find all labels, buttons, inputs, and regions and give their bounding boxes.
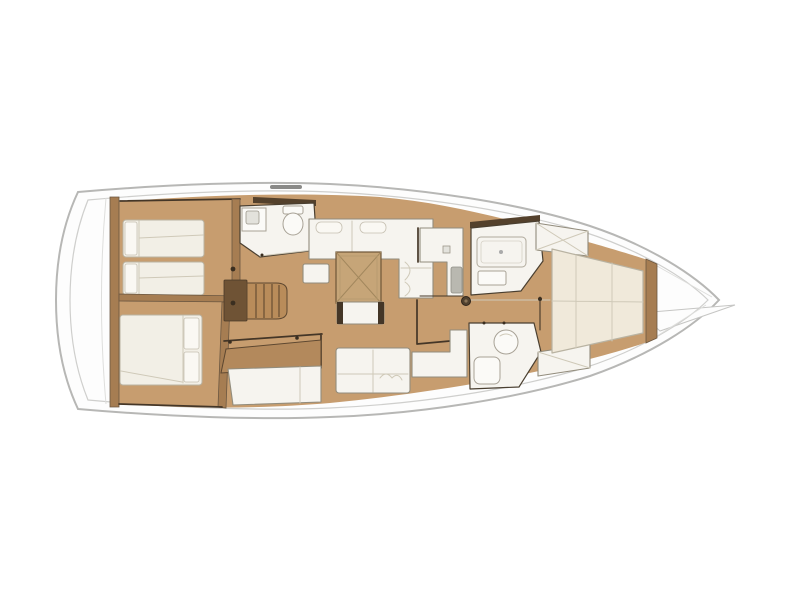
door-hinge-dot (231, 267, 236, 272)
door-hinge-dot (503, 322, 506, 325)
companionway-landing (224, 280, 247, 321)
ottoman-end-cap (378, 302, 384, 324)
ottoman (337, 302, 384, 324)
sink-basin (246, 211, 259, 224)
shower-drain (499, 250, 503, 254)
settee-lumbar-pillow (360, 222, 386, 233)
knob (228, 340, 232, 344)
yacht-floor-plan (0, 0, 800, 600)
galley-sink (451, 267, 462, 293)
door-hinge-dot (261, 254, 264, 257)
settee-lumbar-pillow (316, 222, 342, 233)
mast-post-center (464, 299, 467, 302)
berth-1-pillow (125, 222, 137, 255)
shower-bench (478, 271, 506, 285)
double-berth-pillow-1 (184, 318, 199, 349)
double-berth-pillow-2 (184, 352, 199, 382)
floor-plan-canvas (0, 0, 800, 600)
toilet-bowl (283, 213, 303, 235)
deck-traveler-bar (270, 185, 302, 189)
aft-head (240, 197, 317, 257)
door-hinge-dot (483, 322, 486, 325)
galley-hob (443, 246, 450, 253)
forward-bulkhead (646, 259, 657, 343)
companionway-stairs (247, 283, 287, 319)
door-hinge-dot (538, 297, 542, 301)
knob (295, 336, 299, 340)
aft-bulkhead (110, 197, 119, 407)
ottoman-end-cap (337, 302, 343, 324)
companionway-step-box (303, 264, 329, 283)
door-hinge-dot (231, 301, 236, 306)
toilet (474, 357, 500, 384)
nav-cabinet (228, 366, 321, 405)
berth-2-pillow (125, 264, 137, 293)
